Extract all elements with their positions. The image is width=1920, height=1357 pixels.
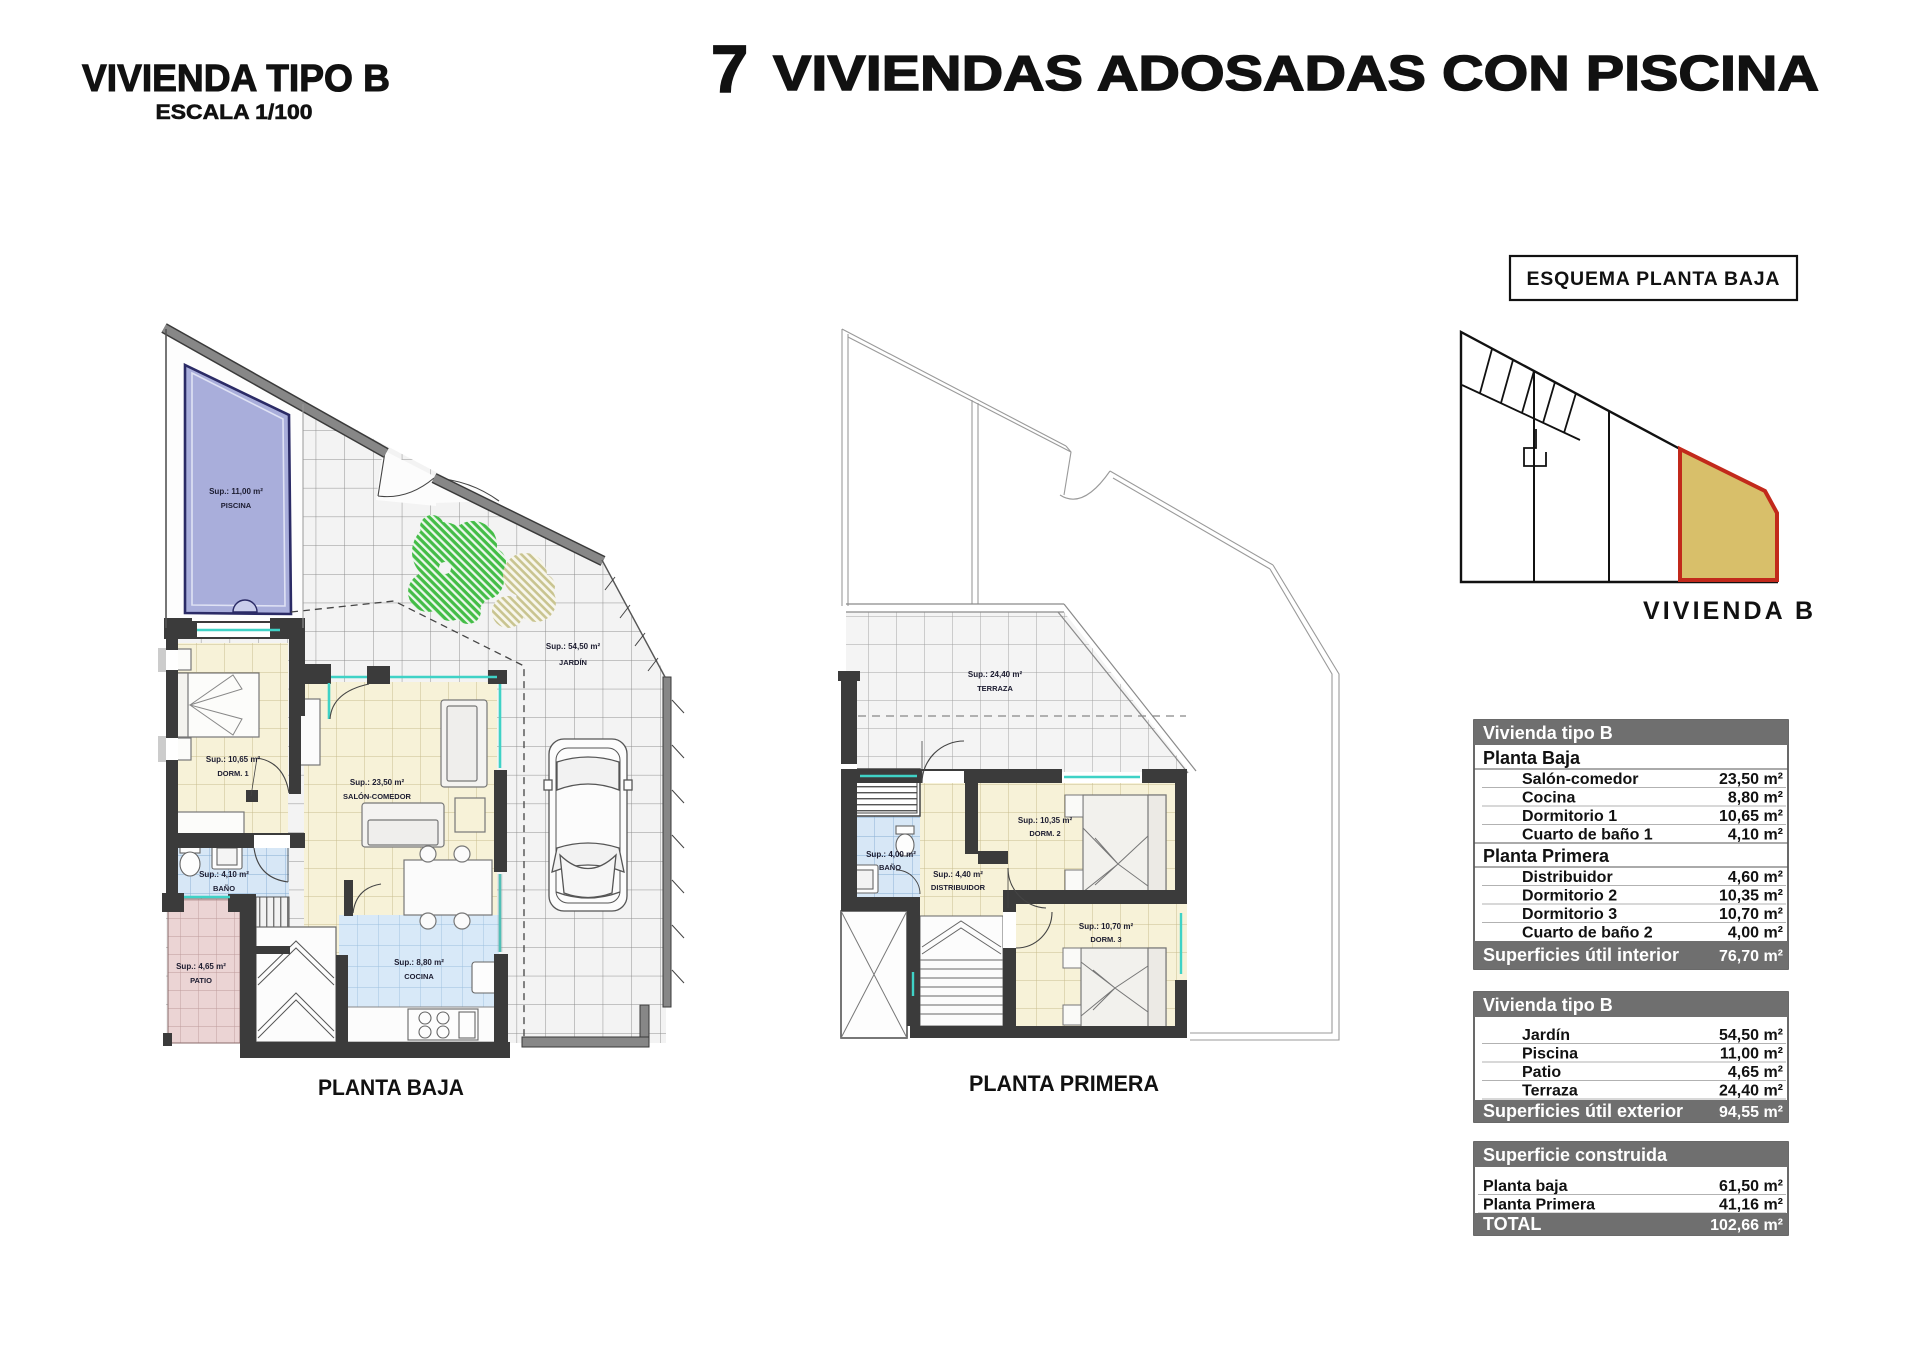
svg-text:BAÑO: BAÑO <box>879 863 901 872</box>
svg-text:Terraza: Terraza <box>1522 1083 1578 1100</box>
svg-text:VIVIENDA B: VIVIENDA B <box>1643 597 1813 625</box>
svg-text:Sup.: 11,00 m²: Sup.: 11,00 m² <box>209 487 263 496</box>
svg-text:10,35 m²: 10,35 m² <box>1719 888 1783 905</box>
svg-text:VIVIENDA TIPO B: VIVIENDA TIPO B <box>82 58 390 100</box>
svg-text:VIVIENDAS ADOSADAS CON PISCINA: VIVIENDAS ADOSADAS CON PISCINA <box>773 47 1819 101</box>
svg-text:23,50 m²: 23,50 m² <box>1719 771 1783 788</box>
svg-text:24,40 m²: 24,40 m² <box>1719 1083 1783 1100</box>
svg-text:11,00 m²: 11,00 m² <box>1720 1046 1783 1063</box>
svg-text:PLANTA BAJA: PLANTA BAJA <box>318 1075 464 1100</box>
svg-text:4,10 m²: 4,10 m² <box>1728 827 1783 844</box>
svg-text:Cocina: Cocina <box>1522 790 1575 807</box>
svg-text:4,65 m²: 4,65 m² <box>1728 1064 1783 1081</box>
svg-text:Patio: Patio <box>1522 1064 1561 1081</box>
svg-text:JARDÍN: JARDÍN <box>559 658 587 667</box>
svg-text:Planta Baja: Planta Baja <box>1483 748 1581 768</box>
svg-text:PISCINA: PISCINA <box>221 501 252 510</box>
svg-text:DISTRIBUIDOR: DISTRIBUIDOR <box>931 883 986 892</box>
svg-text:102,66 m²: 102,66 m² <box>1710 1217 1783 1234</box>
svg-text:94,55 m²: 94,55 m² <box>1719 1104 1783 1121</box>
svg-text:PATIO: PATIO <box>190 976 212 985</box>
svg-text:DORM. 3: DORM. 3 <box>1090 935 1121 944</box>
svg-text:Sup.: 4,65 m²: Sup.: 4,65 m² <box>176 962 226 971</box>
svg-text:10,65 m²: 10,65 m² <box>1719 808 1783 825</box>
svg-text:10,70 m²: 10,70 m² <box>1719 906 1783 923</box>
svg-text:41,16 m²: 41,16 m² <box>1719 1197 1783 1214</box>
svg-text:Sup.: 10,35 m²: Sup.: 10,35 m² <box>1018 816 1073 825</box>
svg-text:TERRAZA: TERRAZA <box>977 684 1013 693</box>
svg-text:Sup.: 4,00 m²: Sup.: 4,00 m² <box>866 850 916 859</box>
svg-text:ESQUEMA PLANTA BAJA: ESQUEMA PLANTA BAJA <box>1527 268 1780 290</box>
svg-text:54,50 m²: 54,50 m² <box>1719 1027 1783 1044</box>
svg-text:PLANTA PRIMERA: PLANTA PRIMERA <box>969 1071 1159 1096</box>
svg-text:Superficie construida: Superficie construida <box>1483 1145 1668 1165</box>
svg-text:DORM. 1: DORM. 1 <box>217 769 248 778</box>
svg-text:Sup.: 24,40 m²: Sup.: 24,40 m² <box>968 670 1023 679</box>
svg-text:Dormitorio 1: Dormitorio 1 <box>1522 808 1617 825</box>
svg-text:Piscina: Piscina <box>1522 1046 1578 1063</box>
svg-text:Planta Primera: Planta Primera <box>1483 846 1610 866</box>
svg-text:Jardín: Jardín <box>1522 1027 1570 1044</box>
svg-text:8,80 m²: 8,80 m² <box>1728 790 1783 807</box>
svg-text:Vivienda tipo B: Vivienda tipo B <box>1483 723 1613 743</box>
svg-text:Distribuidor: Distribuidor <box>1522 869 1613 886</box>
svg-text:7: 7 <box>711 32 748 107</box>
svg-text:BAÑO: BAÑO <box>213 884 235 893</box>
svg-text:4,00 m²: 4,00 m² <box>1728 925 1783 942</box>
svg-text:Dormitorio 3: Dormitorio 3 <box>1522 906 1617 923</box>
svg-text:Planta baja: Planta baja <box>1483 1178 1568 1195</box>
svg-text:Dormitorio 2: Dormitorio 2 <box>1522 888 1617 905</box>
svg-text:Superficies útil interior: Superficies útil interior <box>1483 945 1679 965</box>
svg-text:Vivienda tipo B: Vivienda tipo B <box>1483 995 1613 1015</box>
svg-text:61,50 m²: 61,50 m² <box>1719 1178 1783 1195</box>
svg-text:76,70 m²: 76,70 m² <box>1719 948 1783 965</box>
svg-text:Sup.: 54,50 m²: Sup.: 54,50 m² <box>546 642 601 651</box>
svg-text:COCINA: COCINA <box>404 972 434 981</box>
svg-text:ESCALA 1/100: ESCALA 1/100 <box>156 101 313 124</box>
svg-text:Sup.: 4,10 m²: Sup.: 4,10 m² <box>199 870 249 879</box>
svg-text:Sup.: 10,70 m²: Sup.: 10,70 m² <box>1079 922 1134 931</box>
svg-text:DORM. 2: DORM. 2 <box>1029 829 1060 838</box>
svg-text:Sup.: 4,40 m²: Sup.: 4,40 m² <box>933 870 983 879</box>
svg-text:Salón-comedor: Salón-comedor <box>1522 771 1638 788</box>
svg-text:SALÓN-COMEDOR: SALÓN-COMEDOR <box>343 792 411 801</box>
svg-text:TOTAL: TOTAL <box>1483 1214 1541 1234</box>
svg-text:Superficies útil exterior: Superficies útil exterior <box>1483 1101 1683 1121</box>
svg-text:Sup.: 23,50 m²: Sup.: 23,50 m² <box>350 778 405 787</box>
svg-text:Sup.: 8,80 m²: Sup.: 8,80 m² <box>394 958 444 967</box>
svg-text:Planta Primera: Planta Primera <box>1483 1197 1595 1214</box>
svg-text:4,60 m²: 4,60 m² <box>1728 869 1783 886</box>
svg-text:Cuarto de baño 2: Cuarto de baño 2 <box>1522 925 1653 942</box>
svg-text:Sup.: 10,65 m²: Sup.: 10,65 m² <box>206 755 261 764</box>
svg-text:Cuarto de baño 1: Cuarto de baño 1 <box>1522 827 1653 844</box>
